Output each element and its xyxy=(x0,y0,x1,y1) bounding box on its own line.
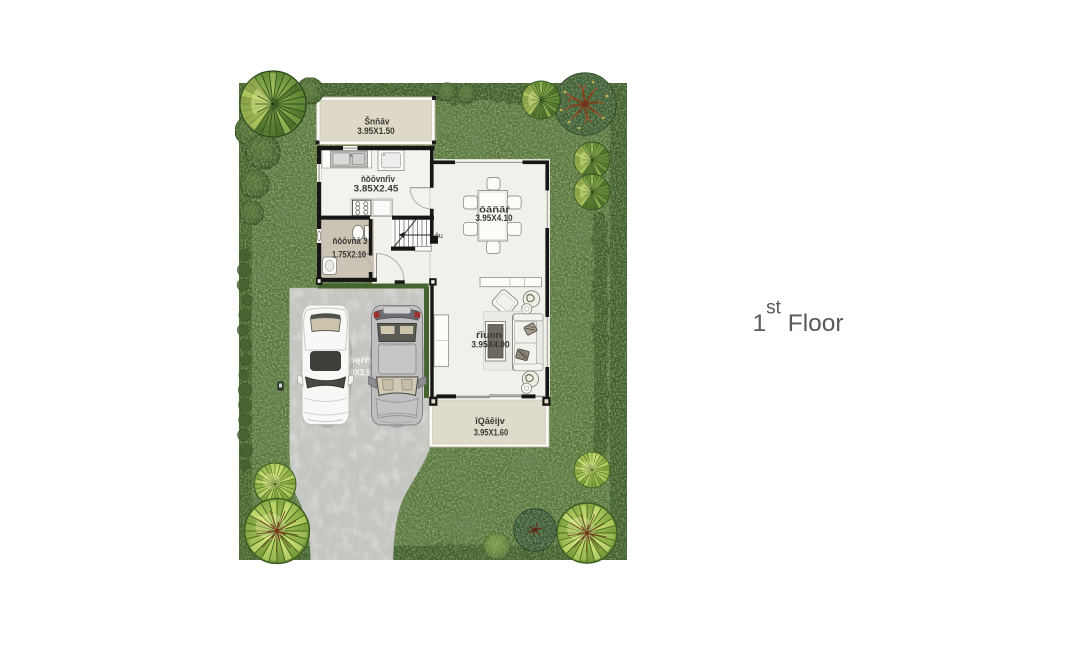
svg-text:īQāēĳv: īQāēĳv xyxy=(474,416,505,426)
svg-text:3.95X1.60: 3.95X1.60 xyxy=(474,428,508,439)
svg-text:ŕīuıın: ŕīuıın xyxy=(476,330,502,340)
svg-text:3.95X4.00: 3.95X4.00 xyxy=(471,340,509,351)
svg-text:1st Floor: 1st Floor xyxy=(753,298,844,338)
svg-text:Šnňāv: Šnňāv xyxy=(365,116,391,127)
svg-text:1.75X2.10: 1.75X2.10 xyxy=(332,250,366,261)
svg-text:ňŏōvňā 3: ňŏōvňā 3 xyxy=(333,236,368,246)
svg-text:3.95X1.50: 3.95X1.50 xyxy=(357,126,395,137)
svg-text:3.95X4.10: 3.95X4.10 xyxy=(475,213,512,224)
svg-text:3.85X2.45: 3.85X2.45 xyxy=(354,183,399,194)
